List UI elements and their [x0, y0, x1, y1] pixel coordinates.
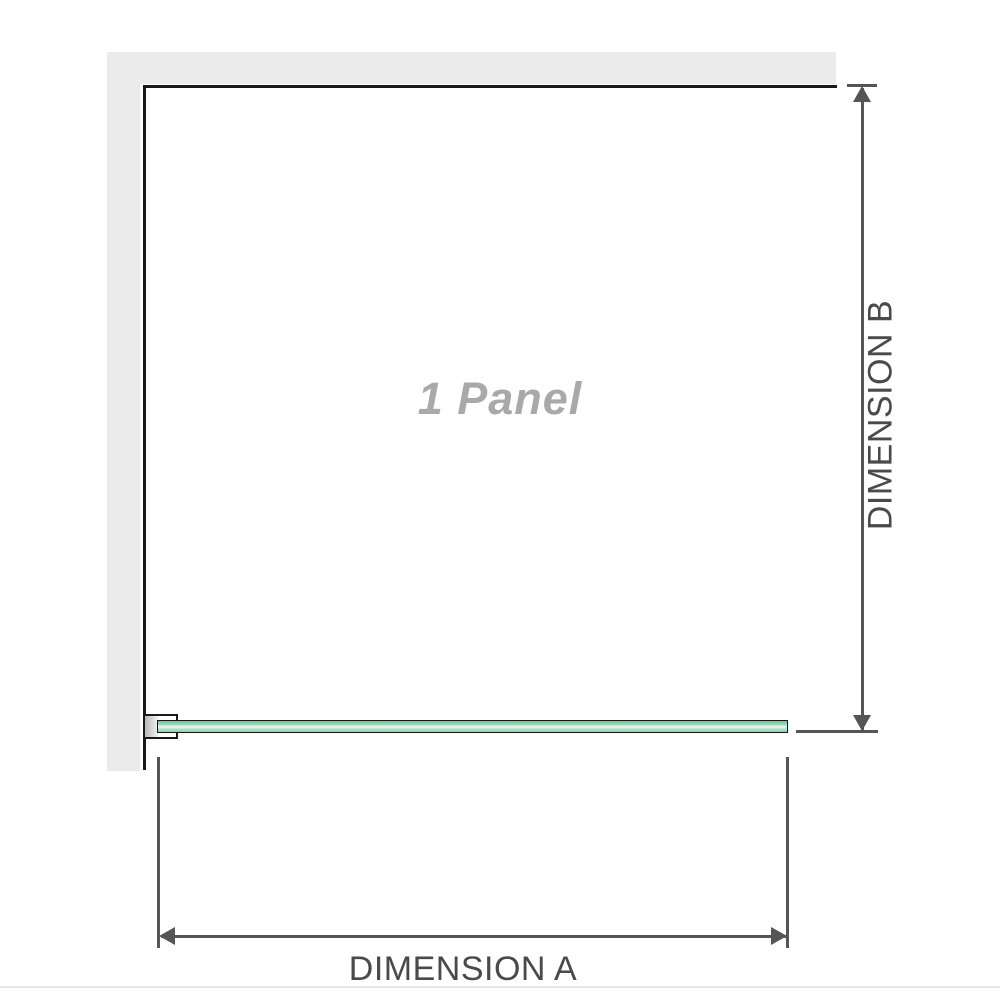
dimension-a-line [161, 935, 786, 939]
wall-top [107, 52, 836, 84]
extension-line-left [157, 757, 160, 948]
panel-count-label: 1 Panel [418, 373, 583, 425]
wall-left [107, 52, 140, 771]
wall-edge-top-line [143, 85, 837, 88]
arrow-left-icon [159, 927, 175, 945]
dimension-a-label: DIMENSION A [349, 950, 577, 989]
panel-dimension-diagram: DIMENSION B DIMENSION A 1 Panel [0, 0, 1000, 1000]
arrow-down-icon [853, 715, 871, 731]
arrow-up-icon [853, 86, 871, 102]
bottom-divider [0, 986, 1000, 988]
dimension-b-label: DIMENSION B [862, 300, 901, 530]
wall-edge-left-line [143, 85, 146, 770]
arrow-right-icon [771, 927, 787, 945]
extension-line-right [786, 757, 789, 948]
glass-panel [157, 720, 788, 733]
